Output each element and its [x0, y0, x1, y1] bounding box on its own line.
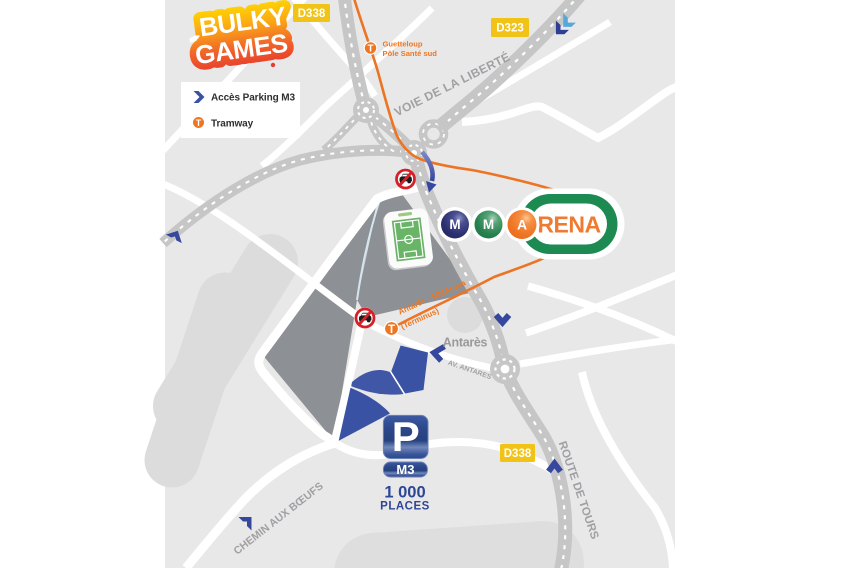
svg-text:Accès Parking M3: Accès Parking M3	[211, 93, 296, 104]
svg-text:Guetteloup: Guetteloup	[383, 40, 423, 49]
svg-text:Pôle Santé sud: Pôle Santé sud	[383, 49, 438, 58]
svg-text:P: P	[392, 413, 420, 460]
svg-text:M3: M3	[396, 462, 414, 477]
svg-text:T: T	[367, 44, 373, 55]
svg-text:D338: D338	[504, 448, 532, 460]
svg-text:T: T	[388, 324, 395, 336]
svg-text:T: T	[196, 118, 202, 128]
svg-text:Tramway: Tramway	[211, 119, 254, 130]
svg-text:D338: D338	[298, 8, 326, 20]
svg-text:D323: D323	[496, 23, 524, 35]
svg-text:Antarès: Antarès	[443, 336, 488, 350]
svg-text:RENA: RENA	[537, 212, 600, 238]
svg-text:PLACES: PLACES	[380, 501, 430, 513]
svg-text:1 000: 1 000	[384, 484, 425, 502]
svg-text:M: M	[483, 217, 494, 232]
svg-text:M: M	[449, 217, 460, 232]
svg-text:A: A	[517, 217, 527, 233]
